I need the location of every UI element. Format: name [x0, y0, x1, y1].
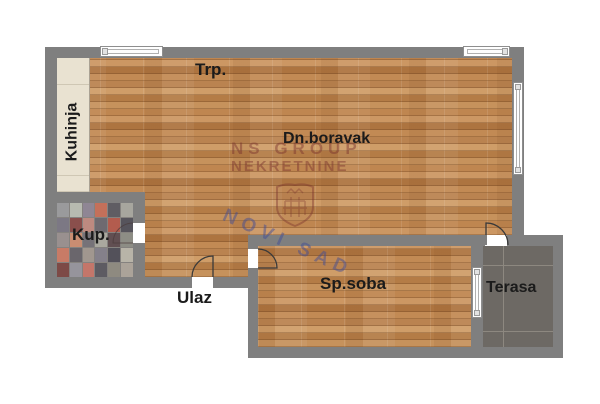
door-opening-entrance — [192, 277, 213, 288]
window-pane — [467, 49, 506, 54]
door-opening-bathroom — [133, 223, 145, 243]
bathroom-tile — [95, 248, 107, 262]
floor-plan: NS GROUP NEKRETNINE NOVI SAD Kuhinja Trp… — [0, 0, 600, 404]
bathroom-label: Kup. — [72, 225, 110, 245]
bathroom-tile — [121, 218, 133, 232]
terrace-label: Terasa — [486, 279, 536, 297]
window-frame-cap — [515, 167, 521, 173]
door-opening-bedroom — [248, 249, 258, 268]
terrace-floor — [483, 246, 553, 348]
kitchen-label-wrap: Kuhinja — [54, 86, 90, 178]
door-opening-terrace — [485, 235, 507, 246]
bathroom-tile — [83, 203, 95, 217]
window-pane — [104, 49, 159, 54]
window-top-left — [100, 46, 163, 57]
dining-label: Trp. — [195, 60, 226, 80]
bathroom-tile — [57, 248, 69, 262]
window-frame-cap — [102, 48, 108, 55]
kitchen-label: Kuhinja — [63, 103, 81, 162]
wall-bottom-bedroom-terrace — [248, 347, 563, 358]
window-right-wall — [513, 82, 523, 175]
window-frame-cap — [515, 84, 521, 90]
bathroom-tile — [108, 233, 120, 247]
bathroom-tile — [70, 248, 82, 262]
bathroom-tile — [95, 203, 107, 217]
bathroom-tile — [95, 263, 107, 277]
bathroom-tile — [70, 203, 82, 217]
novi-sad-crest-icon — [273, 181, 317, 228]
bathroom-tile — [57, 203, 69, 217]
bathroom-tile — [57, 263, 69, 277]
window-frame-cap — [502, 48, 508, 55]
bathroom-tile — [57, 218, 69, 232]
bathroom-tile — [108, 248, 120, 262]
entrance-label: Ulaz — [177, 288, 212, 308]
bathroom-tile — [83, 248, 95, 262]
bedroom-floor — [258, 246, 471, 347]
bathroom-tile — [108, 218, 120, 232]
bathroom-tile — [108, 203, 120, 217]
window-bedroom-terrace — [472, 267, 482, 318]
window-top-right — [463, 46, 510, 57]
bathroom-tile — [70, 263, 82, 277]
wall-divider-living-bedroom — [248, 235, 563, 246]
window-frame-cap — [474, 269, 480, 275]
living-room-label: Dn.boravak — [283, 130, 370, 148]
wall-bottom-hall — [45, 277, 258, 288]
window-pane — [475, 271, 479, 314]
wall-bathroom-top — [45, 192, 145, 203]
wall-terrace-right — [553, 235, 563, 358]
window-pane — [516, 86, 520, 171]
bathroom-tile — [121, 233, 133, 247]
bathroom-tile — [83, 263, 95, 277]
bathroom-tile — [108, 263, 120, 277]
bathroom-tile — [57, 233, 69, 247]
window-frame-cap — [474, 310, 480, 316]
bathroom-tile — [121, 263, 133, 277]
bathroom-tile — [121, 248, 133, 262]
bathroom-tile — [121, 203, 133, 217]
bedroom-label: Sp.soba — [320, 274, 386, 294]
